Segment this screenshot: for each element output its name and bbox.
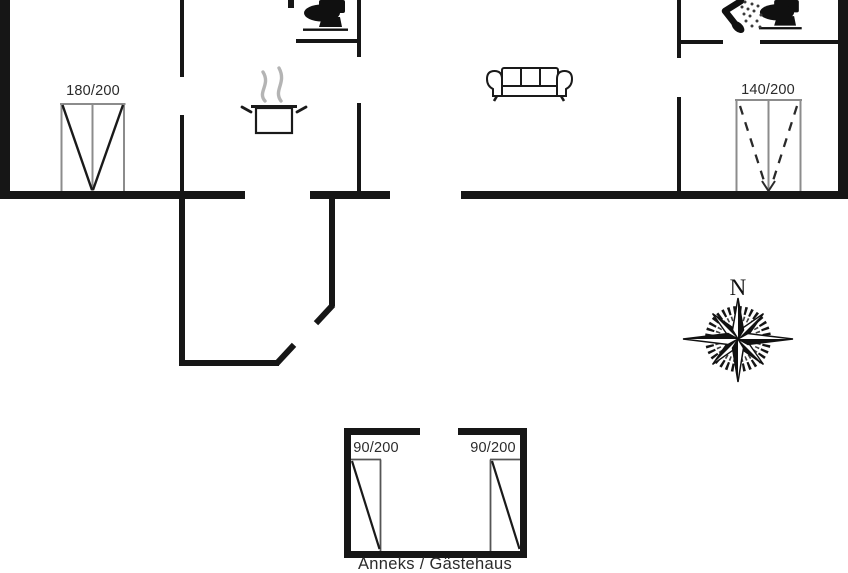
wall-bedroom-kitchen-lower	[180, 115, 184, 193]
wall-exterior-bottom-2	[310, 191, 390, 199]
sofa-icon	[487, 68, 572, 101]
annex-door-right-icon	[490, 460, 520, 552]
vestibule-door-jambs	[279, 307, 331, 361]
window-right-label: 140/200	[733, 83, 803, 98]
wall-wc-bottom	[296, 39, 360, 43]
window-180-icon	[60, 104, 126, 191]
compass-north-label: N	[722, 276, 754, 300]
wall-exterior-left	[0, 0, 10, 199]
wall-annex-top-left	[344, 428, 420, 435]
window-left-label: 180/200	[60, 84, 126, 99]
wall-annex-top-right	[458, 428, 527, 435]
wall-exterior-right	[838, 0, 848, 199]
wall-kitchen-living-lower	[357, 103, 361, 193]
wall-exterior-bottom-1	[0, 191, 245, 199]
wall-living-bath-upper	[677, 0, 681, 58]
wall-bedroom-kitchen-upper	[180, 0, 184, 77]
wall-vestibule-left	[179, 198, 185, 366]
annex-door-right-label: 90/200	[466, 441, 520, 456]
cooking-pot-icon	[242, 68, 306, 133]
wall-vestibule-bottom	[179, 360, 279, 366]
annex-door-left-label: 90/200	[349, 441, 403, 456]
wall-wc-left-stub	[288, 0, 294, 8]
compass-rose-icon	[683, 298, 793, 382]
wall-exterior-bottom-3	[461, 191, 848, 199]
plan-symbols-layer	[0, 0, 848, 565]
wall-kitchen-living-upper	[357, 0, 361, 57]
shower-icon	[725, 1, 763, 36]
wall-bath-bottom-left	[677, 40, 723, 44]
wall-bath-bottom-right	[760, 40, 838, 44]
floor-plan: 180/200 140/200 90/200 90/200 N Anneks /…	[0, 0, 848, 565]
wall-vestibule-right	[329, 198, 335, 306]
wall-living-bath-lower	[677, 97, 681, 193]
toilet-icon-2	[759, 0, 802, 29]
wall-annex-right	[520, 428, 527, 558]
window-140-icon	[735, 100, 802, 191]
toilet-icon	[303, 0, 348, 31]
annex-door-left-icon	[351, 460, 381, 552]
